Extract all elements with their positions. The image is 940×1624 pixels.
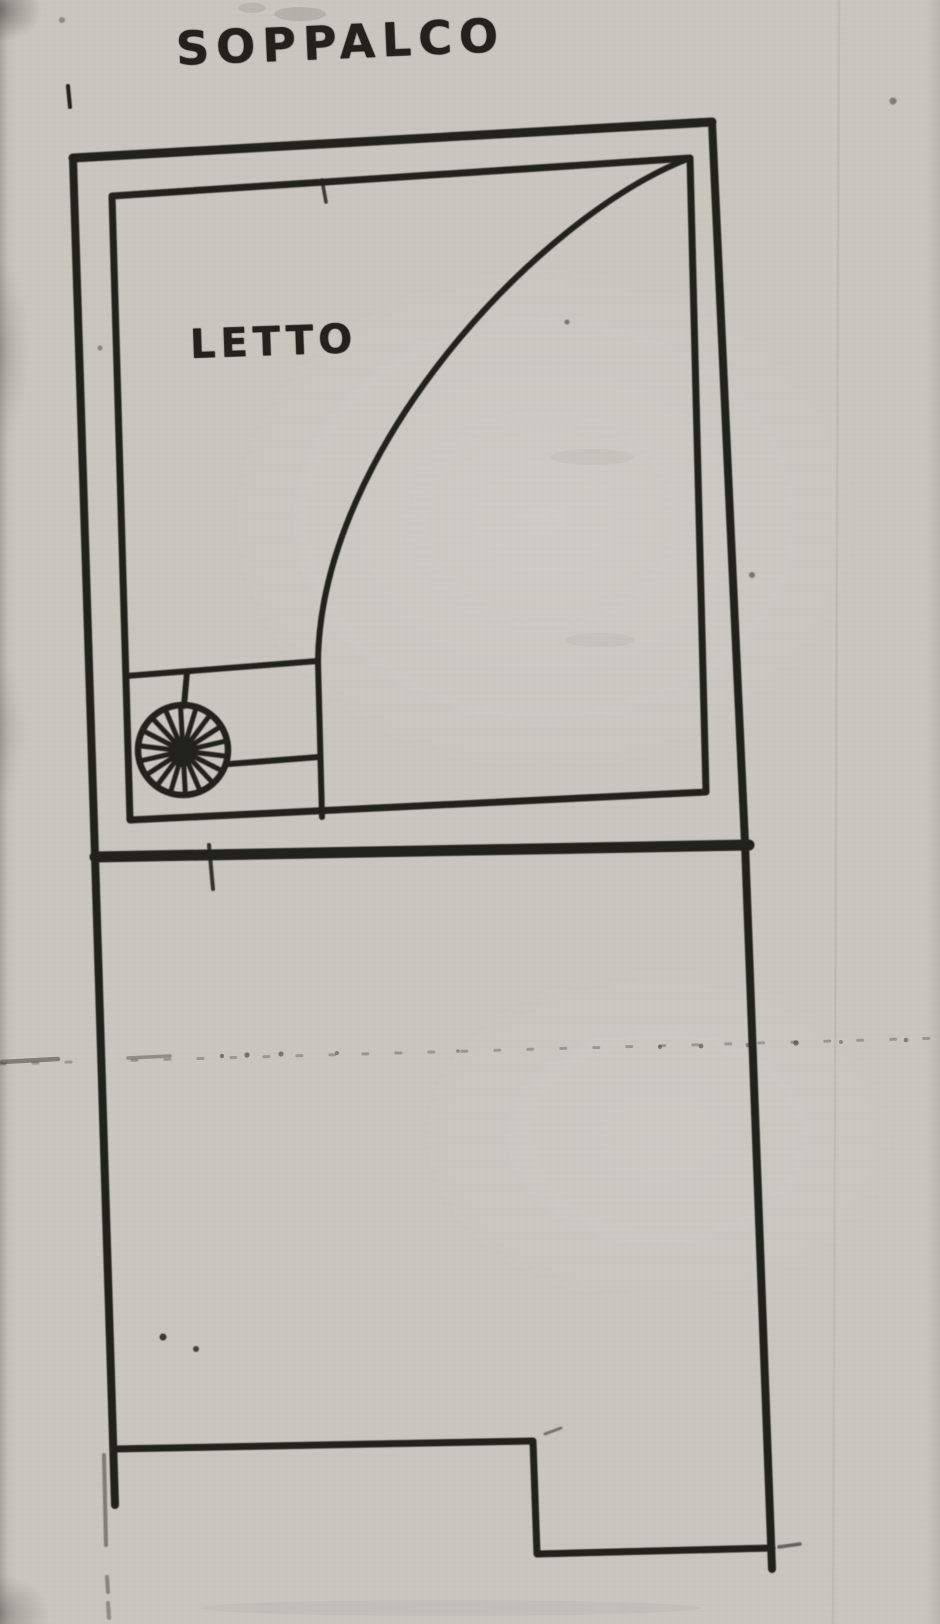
tick-mark [68, 86, 70, 107]
scanned-floor-plan-page: SOPPALCO LETTO [0, 0, 940, 1624]
spiral-staircase-spoke [181, 709, 183, 745]
inner-wall [112, 158, 706, 820]
stair-landing-line-vertical [318, 662, 322, 817]
crease-dot [278, 1051, 283, 1056]
dash-mark [779, 1544, 800, 1547]
crease-dot [658, 1045, 662, 1049]
letto-label: LETTO [189, 316, 358, 368]
crease-dash [128, 1056, 170, 1058]
stair-landing-line-mid [184, 672, 187, 706]
smudge [565, 633, 635, 647]
ink-dot [98, 346, 103, 351]
mezzanine-divider-wall [95, 845, 749, 857]
crease-marks [0, 0, 940, 1624]
crease-dot [904, 1038, 909, 1043]
spiral-staircase-icon [138, 705, 228, 795]
ink-dot [160, 1334, 167, 1341]
crease-dot [335, 1051, 339, 1055]
squiggle-mark [545, 1428, 561, 1434]
crease-dot [793, 1040, 799, 1046]
ink-dot [890, 98, 897, 105]
wall-ghost-line [104, 1455, 106, 1545]
vertical-fold-crease [833, 0, 839, 1624]
crease-dash [2, 1059, 58, 1062]
crease-dot [699, 1044, 704, 1049]
crease-dot [839, 1040, 843, 1044]
top-wall [73, 122, 712, 158]
stair-landing-line-top [126, 661, 318, 676]
horizontal-fold-crease [0, 1038, 940, 1064]
ink-drawing [59, 17, 897, 1618]
ink-dot [59, 17, 65, 23]
smudge [238, 3, 266, 13]
floor-plan-drawing [0, 0, 940, 1624]
dash-mark [108, 1603, 109, 1618]
dash-mark [107, 1577, 108, 1592]
crease-dot [456, 1049, 460, 1053]
smudge [200, 1600, 700, 1616]
smudge [550, 449, 634, 465]
crease-dot [244, 1052, 249, 1057]
stair-landing-line-bottom [229, 757, 319, 764]
ink-dot [749, 572, 755, 578]
bottom-step-wall [113, 1441, 772, 1554]
ink-dot [193, 1346, 199, 1352]
spiral-staircase-newel [170, 743, 194, 767]
crease-dot [220, 1054, 224, 1058]
left-wall [73, 158, 115, 1505]
mezzanine-edge-curve [318, 158, 690, 662]
ink-dot [565, 320, 570, 325]
